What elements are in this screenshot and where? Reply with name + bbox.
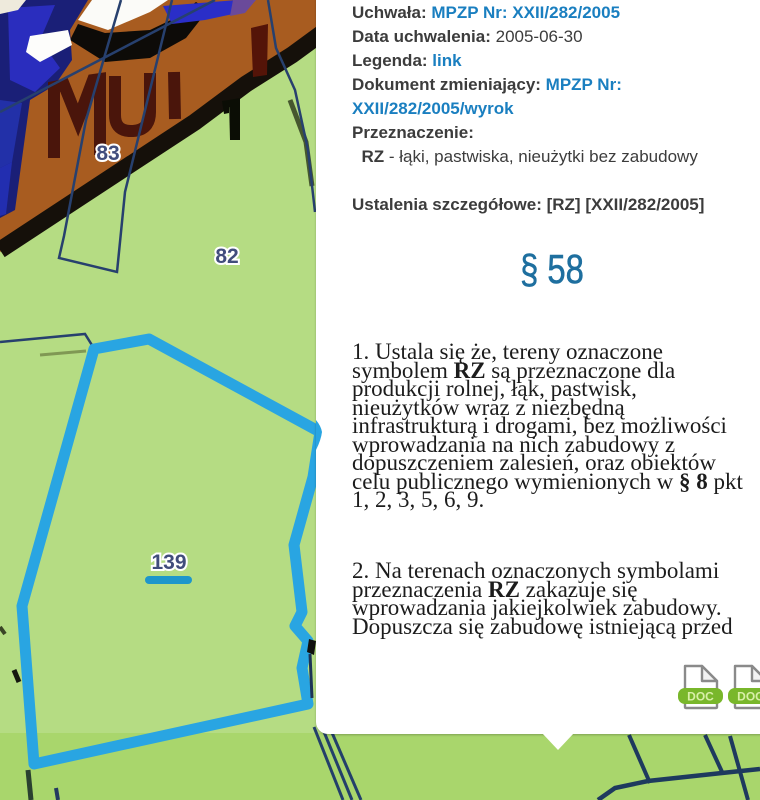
svg-text:83: 83 [96,142,119,165]
svg-text:DOC: DOC [737,690,760,704]
svg-text:82: 82 [215,245,238,268]
svg-text:139: 139 [151,551,186,574]
svg-text:DOC: DOC [687,690,714,704]
